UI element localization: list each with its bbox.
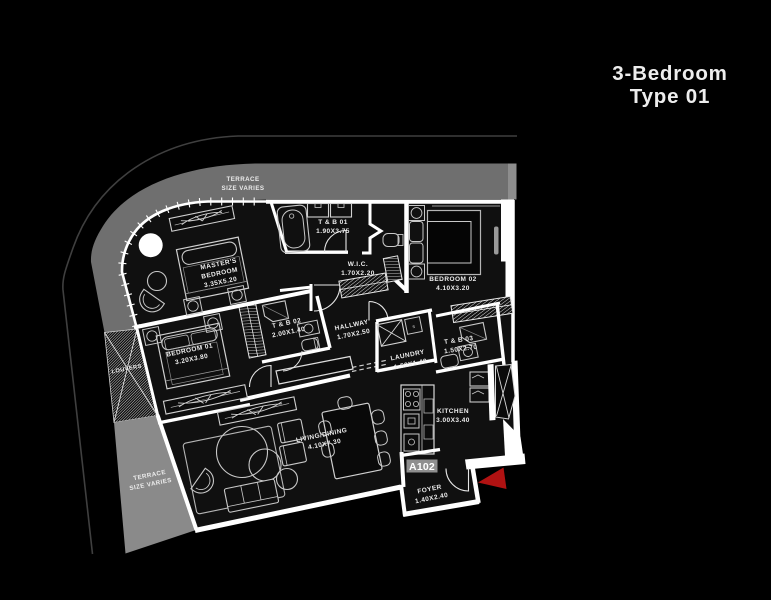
svg-text:BEDROOM 02: BEDROOM 02	[429, 276, 476, 283]
svg-text:TERRACE: TERRACE	[226, 176, 259, 183]
svg-text:1.90X3.75: 1.90X3.75	[316, 228, 350, 235]
svg-text:3-Bedroom: 3-Bedroom	[612, 62, 727, 85]
svg-text:KITCHEN: KITCHEN	[437, 408, 469, 415]
svg-text:Type 01: Type 01	[630, 85, 710, 108]
svg-text:1.70X2.20: 1.70X2.20	[341, 270, 375, 277]
svg-text:4.10X3.20: 4.10X3.20	[436, 285, 470, 292]
svg-text:A102: A102	[409, 461, 435, 473]
svg-text:T & B 01: T & B 01	[318, 219, 348, 226]
svg-text:W.I.C.: W.I.C.	[348, 261, 368, 268]
svg-text:3.00X3.40: 3.00X3.40	[436, 417, 470, 424]
svg-text:SIZE VARIES: SIZE VARIES	[222, 185, 265, 192]
